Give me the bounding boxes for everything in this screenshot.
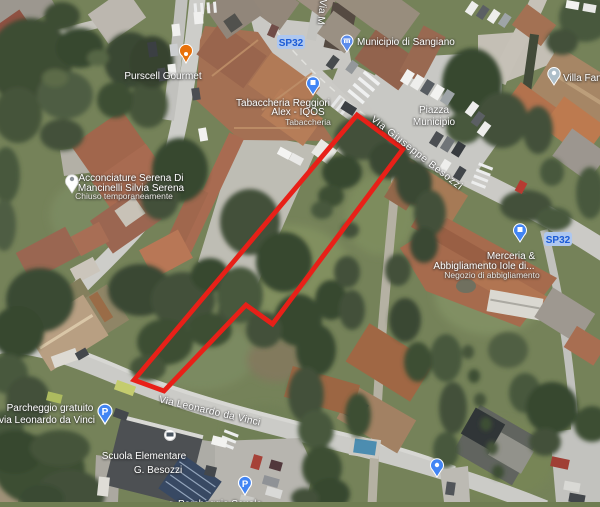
svg-text:Municipio: Municipio (413, 117, 456, 128)
svg-text:SP32: SP32 (279, 38, 304, 49)
svg-text:Purscell Gourmet: Purscell Gourmet (124, 71, 201, 82)
svg-text:SP32: SP32 (546, 235, 571, 246)
svg-text:via Leonardo da Vinci: via Leonardo da Vinci (0, 415, 95, 426)
svg-text:Parcheggio gratuito: Parcheggio gratuito (7, 403, 94, 414)
svg-text:Chiuso temporaneamente: Chiuso temporaneamente (75, 191, 173, 201)
svg-text:P: P (242, 479, 249, 490)
svg-text:P: P (102, 407, 109, 418)
svg-text:Scuola Elementare: Scuola Elementare (102, 451, 187, 462)
svg-text:Piazza: Piazza (419, 105, 449, 116)
svg-text:Municipio di Sangiano: Municipio di Sangiano (357, 37, 455, 48)
svg-text:Tabaccheria: Tabaccheria (285, 117, 331, 127)
svg-text:G. Besozzi: G. Besozzi (134, 465, 182, 476)
svg-text:Negozio di abbigliamento: Negozio di abbigliamento (444, 270, 540, 280)
svg-text:Villa Fant: Villa Fant (563, 73, 600, 84)
